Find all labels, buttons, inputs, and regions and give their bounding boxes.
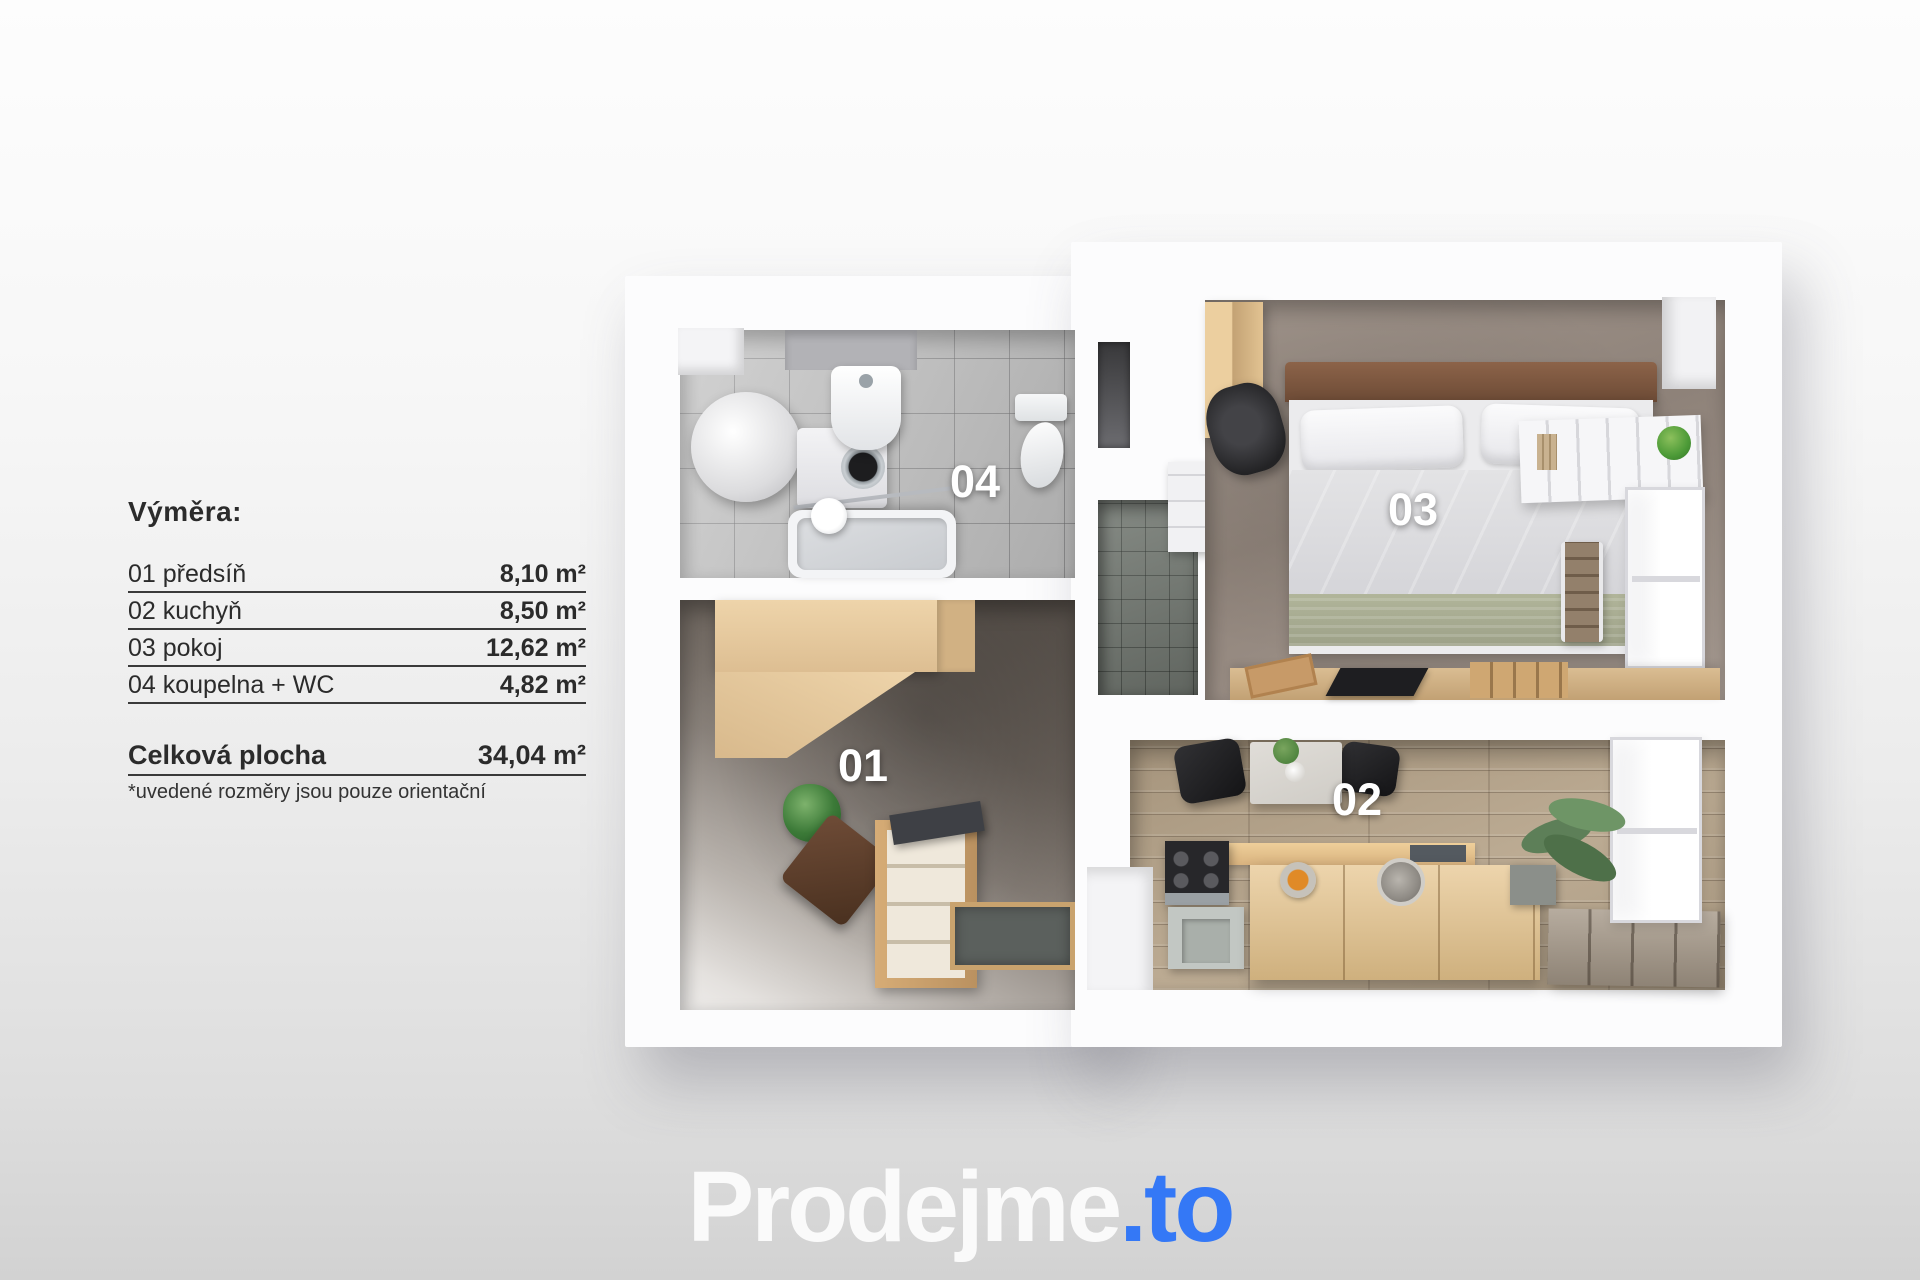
hallway-wardrobe	[715, 600, 937, 672]
dishwasher-door	[1182, 919, 1230, 963]
legend-row-area: 12,62 m²	[486, 634, 586, 663]
stove-front-panel	[1165, 893, 1229, 905]
logo-brand-text: Prodejme	[688, 1151, 1120, 1263]
radiator	[1561, 542, 1603, 642]
legend-row: 03 pokoj 12,62 m²	[128, 630, 586, 667]
kitchen-corner-niche	[1087, 867, 1153, 990]
legend-row-name: 01 předsíň	[128, 560, 246, 589]
window-crossbar	[1632, 576, 1700, 582]
bed-headboard	[1285, 362, 1657, 402]
legend: Výměra: 01 předsíň 8,10 m² 02 kuchyň 8,5…	[128, 496, 586, 804]
desk-organizer	[1470, 662, 1568, 698]
legend-rows: 01 předsíň 8,10 m² 02 kuchyň 8,50 m² 03 …	[128, 556, 586, 704]
bedroom-corner-niche	[1662, 297, 1716, 389]
floor-plan: 01 02 03 04	[625, 242, 1782, 1047]
stove	[1165, 841, 1229, 905]
legend-row-name: 04 koupelna + WC	[128, 671, 334, 700]
bathroom-corner-niche	[678, 328, 744, 375]
legend-row: 01 předsíň 8,10 m²	[128, 556, 586, 593]
legend-row-area: 8,50 m²	[500, 597, 586, 626]
legend-row-name: 02 kuchyň	[128, 597, 242, 626]
table-vase	[1285, 762, 1305, 782]
dishwasher	[1168, 907, 1244, 969]
legend-row-area: 4,82 m²	[500, 671, 586, 700]
legend-row: 04 koupelna + WC 4,82 m²	[128, 667, 586, 704]
fruit-bowl	[1280, 862, 1316, 898]
washing-machine-door	[841, 445, 885, 489]
bathroom-vanity-ledge	[785, 330, 917, 370]
desk-laptop	[1326, 668, 1429, 696]
room-label-02: 02	[1317, 774, 1397, 826]
kitchen-plant	[1520, 790, 1630, 905]
room-label-03: 03	[1373, 484, 1453, 536]
brand-logo: Prodejme.to	[0, 1152, 1920, 1262]
logo-suffix-text: .to	[1119, 1151, 1232, 1263]
toilet-tank	[1015, 394, 1067, 421]
bathroom-sink	[831, 366, 901, 450]
sink-tap	[859, 374, 873, 388]
water-boiler	[691, 392, 801, 502]
shelf-plant	[1657, 426, 1691, 460]
legend-note: *uvedené rozměry jsou pouze orientační	[128, 781, 586, 804]
kitchen-sink-basin	[1377, 858, 1425, 906]
hallway-wardrobe-column	[937, 600, 975, 672]
legend-title: Výměra:	[128, 496, 586, 528]
shower-head	[811, 498, 847, 534]
bed-pillow	[1300, 405, 1464, 473]
legend-row-area: 8,10 m²	[500, 560, 586, 589]
room-label-01: 01	[823, 740, 903, 792]
flyer-page: Výměra: 01 předsíň 8,10 m² 02 kuchyň 8,5…	[0, 0, 1920, 1280]
dining-chair	[1172, 737, 1247, 806]
doorway-niche	[1098, 342, 1130, 448]
legend-total-area: 34,04 m²	[478, 740, 586, 771]
table-plant	[1273, 738, 1299, 764]
legend-total-row: Celková plocha 34,04 m²	[128, 738, 586, 776]
room-label-04: 04	[935, 456, 1015, 508]
entrance-doormat	[950, 902, 1075, 970]
shelf-books	[1537, 434, 1557, 470]
legend-row: 02 kuchyň 8,50 m²	[128, 593, 586, 630]
cooktop	[1410, 845, 1466, 862]
legend-total-label: Celková plocha	[128, 740, 326, 771]
bedroom-window	[1625, 487, 1705, 669]
legend-row-name: 03 pokoj	[128, 634, 223, 663]
